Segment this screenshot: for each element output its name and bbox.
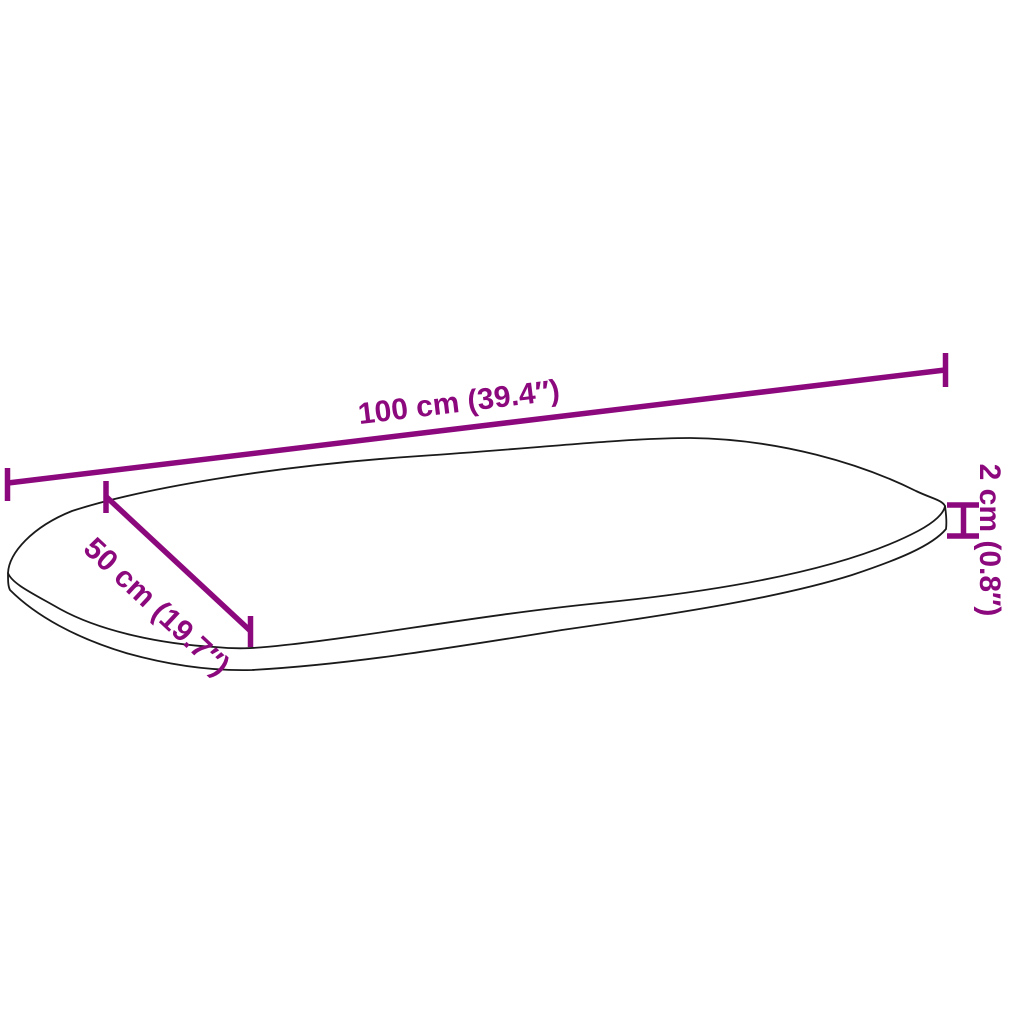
diagram-canvas: 100 cm (39.4″) 50 cm (19.7″) 2 cm (0.8″) (0, 0, 1024, 1024)
thickness-dimension-label: 2 cm (0.8″) (973, 464, 1006, 617)
product-dimension-diagram: 100 cm (39.4″) 50 cm (19.7″) 2 cm (0.8″) (0, 0, 1024, 1024)
thickness-dimension: 2 cm (0.8″) (947, 464, 1006, 617)
